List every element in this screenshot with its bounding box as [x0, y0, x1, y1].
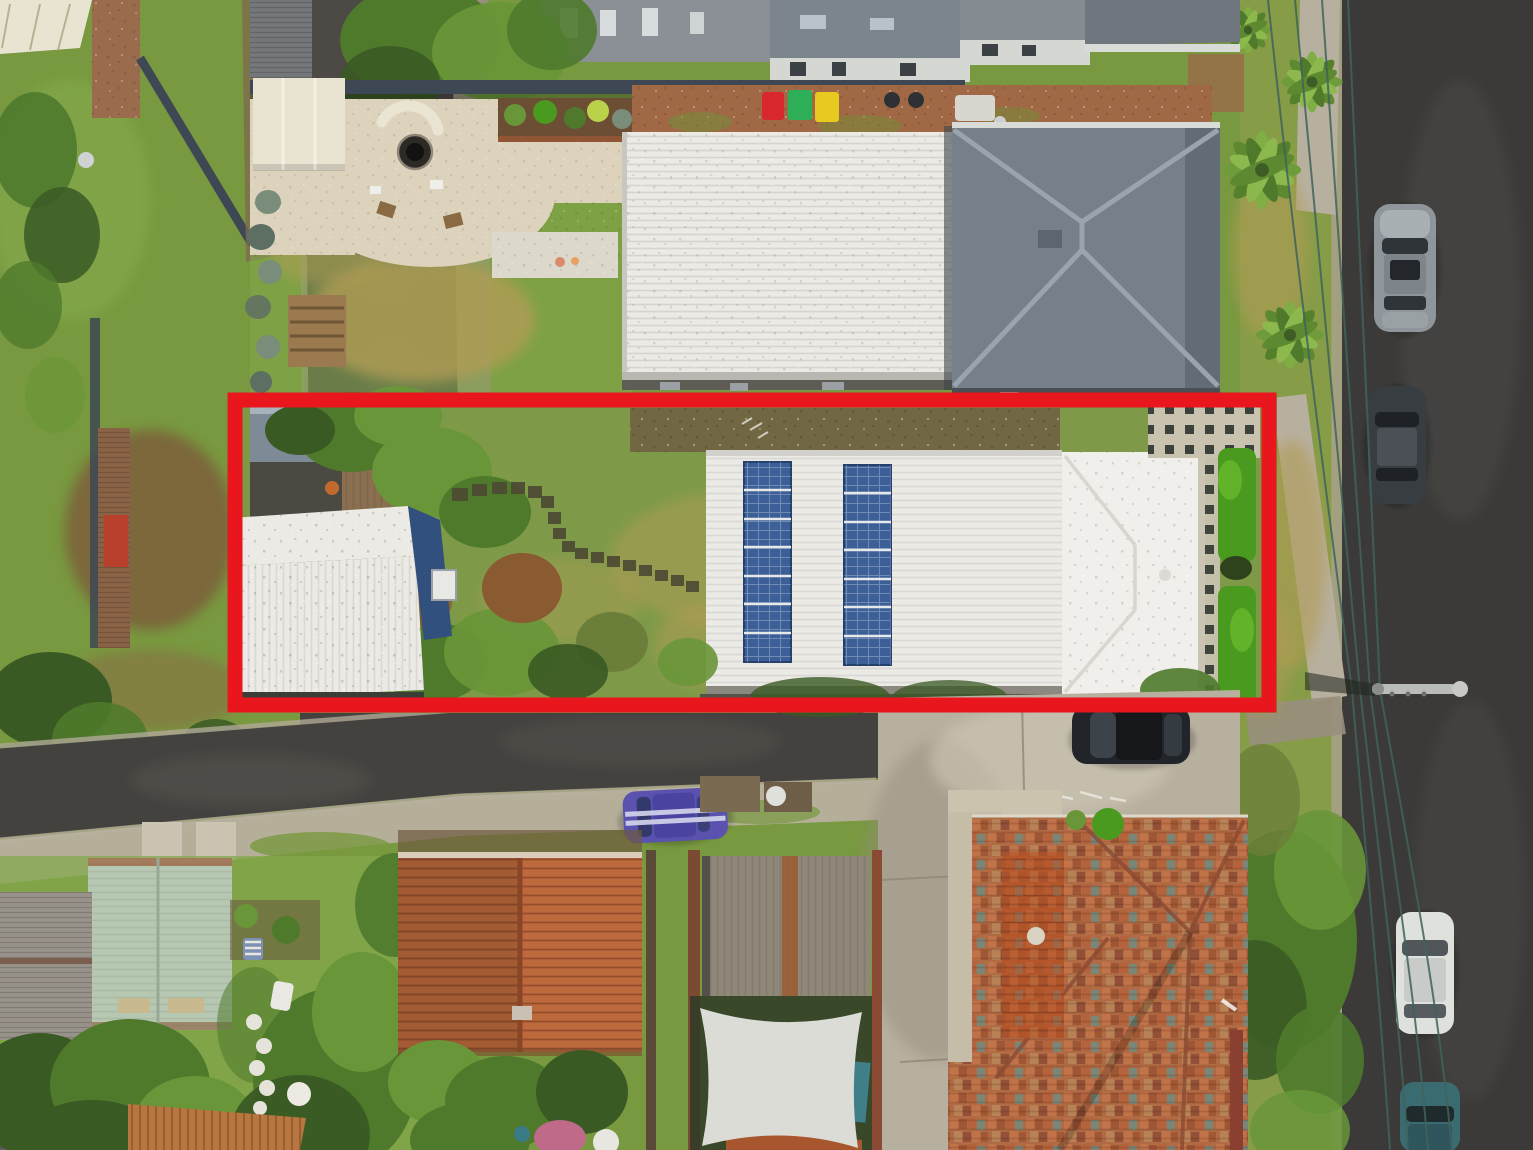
window — [982, 44, 998, 56]
car-roof — [1116, 710, 1162, 760]
shed-panel — [118, 998, 150, 1013]
window — [790, 62, 806, 76]
garden-ornament — [325, 481, 339, 495]
footpath — [1296, 0, 1340, 215]
car-roof — [1377, 428, 1417, 466]
gutter — [1085, 44, 1240, 52]
solar-panel-strip-2 — [844, 465, 891, 665]
checkered-paver-strip — [1198, 458, 1220, 698]
grey-roof-corner — [1085, 0, 1240, 46]
gutter — [952, 122, 1220, 128]
hedge-gap-shadow — [1220, 556, 1252, 580]
pole-top — [1372, 683, 1384, 695]
driveway-strip — [196, 822, 236, 860]
ac-unit — [822, 382, 844, 390]
outdoor-table — [955, 95, 995, 121]
roof-ridge — [0, 958, 92, 964]
main-house — [700, 450, 1205, 703]
black-car — [1068, 706, 1196, 770]
rear-window — [1384, 296, 1426, 310]
driveway-strip — [142, 822, 182, 860]
grey-roof — [960, 0, 1090, 40]
green-bin — [788, 90, 812, 120]
white-shade-sail — [700, 1008, 862, 1148]
skylight — [870, 18, 894, 30]
window — [832, 62, 846, 76]
pot — [884, 92, 900, 108]
aerial-photo — [0, 0, 1533, 1150]
rear-window — [1164, 714, 1182, 756]
street-light — [1452, 681, 1468, 697]
red-brown-fence — [1230, 1030, 1243, 1150]
white-umbrella — [287, 1082, 311, 1106]
window — [900, 63, 916, 76]
satellite-dish — [78, 152, 94, 168]
roof-vent — [1159, 569, 1171, 581]
wooden-crate — [288, 295, 346, 367]
bottom-left-block — [0, 853, 435, 1150]
window-box — [432, 570, 456, 600]
paling-fence — [646, 850, 656, 1150]
window — [690, 12, 704, 34]
highlighted-property — [228, 386, 1277, 717]
white-car — [1391, 910, 1459, 1038]
rear-window — [1404, 1004, 1446, 1018]
rust-streak — [782, 856, 798, 996]
windshield — [1375, 412, 1419, 427]
red-gate — [104, 515, 128, 567]
gazebo-roof — [253, 78, 345, 170]
corner-roof — [0, 0, 92, 54]
rear-window — [1376, 468, 1418, 481]
teal-item — [514, 1126, 530, 1142]
rust-shrub — [482, 553, 562, 623]
shed-panel — [168, 998, 204, 1013]
aerial-photo-canvas — [0, 0, 1533, 1150]
cushion — [430, 180, 443, 189]
left-cottage — [232, 506, 456, 702]
red-bin — [762, 92, 784, 120]
cushion — [370, 186, 381, 194]
garden-item — [555, 257, 565, 267]
fence-line — [872, 850, 882, 1150]
window — [642, 8, 658, 36]
green-bush — [1092, 808, 1124, 840]
bottom-right-house — [948, 790, 1248, 1150]
pot — [908, 92, 924, 108]
planter-edge — [498, 136, 632, 142]
ac-unit — [730, 383, 748, 391]
raised-bed — [700, 776, 760, 812]
windshield — [1090, 712, 1116, 758]
car-roof — [1408, 1124, 1452, 1150]
roof-hatch — [512, 1006, 532, 1020]
solar-panel-strip-1 — [744, 462, 791, 662]
yellow-bin — [815, 92, 839, 122]
grey-hip-roof-house — [944, 122, 1220, 401]
sunroof — [1390, 260, 1420, 280]
windshield — [1382, 238, 1428, 254]
skylight — [800, 15, 826, 29]
car-roof — [652, 792, 696, 838]
silver-car — [1369, 202, 1441, 338]
hood — [1380, 210, 1430, 238]
window — [1022, 45, 1036, 56]
top-white-roof-house — [622, 132, 960, 391]
ac-unit — [660, 382, 680, 390]
white-tub — [766, 786, 786, 806]
dark-sedan — [1363, 384, 1431, 508]
palm-tree — [1281, 51, 1342, 112]
roof-vent — [1038, 230, 1062, 248]
palm-tree — [1256, 301, 1324, 369]
window — [600, 10, 616, 36]
trunk — [1382, 312, 1428, 328]
chimney-pot — [1027, 927, 1045, 945]
